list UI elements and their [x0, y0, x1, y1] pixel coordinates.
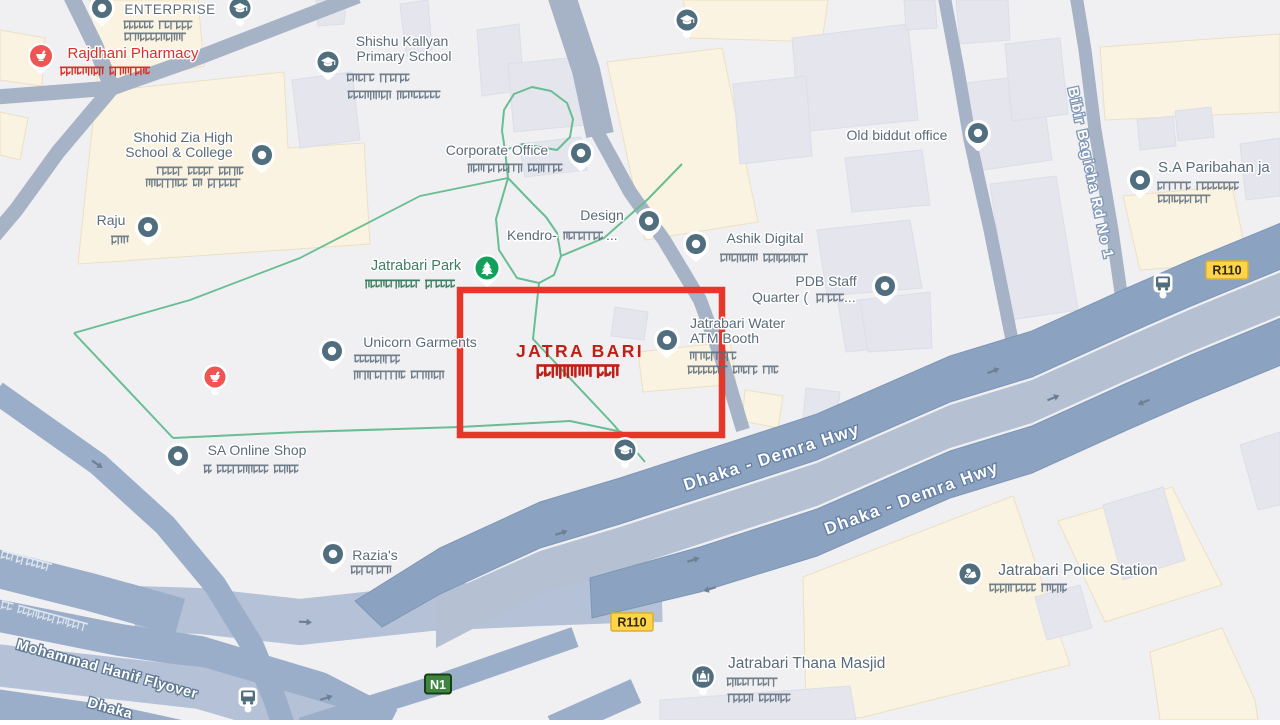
- svg-text:Jatrabari Thana Masjid: Jatrabari Thana Masjid: [728, 655, 885, 672]
- svg-text:Jatrabari Park: Jatrabari Park: [371, 258, 462, 274]
- svg-text:SA Online Shop: SA Online Shop: [208, 442, 307, 458]
- svg-text:School & College: School & College: [125, 144, 233, 160]
- svg-text:...: ...: [844, 289, 856, 305]
- svg-text:Shohid Zia High: Shohid Zia High: [133, 129, 233, 145]
- svg-text:Primary School: Primary School: [357, 48, 452, 64]
- svg-text:R110: R110: [1212, 264, 1241, 278]
- svg-text:Unicorn Garments: Unicorn Garments: [363, 334, 477, 350]
- svg-text:Rajdhani Pharmacy: Rajdhani Pharmacy: [68, 45, 199, 62]
- svg-text:Shishu Kallyan: Shishu Kallyan: [356, 33, 449, 49]
- svg-text:N1: N1: [430, 678, 446, 692]
- svg-text:ATM Booth: ATM Booth: [690, 330, 759, 346]
- svg-text:Raju: Raju: [97, 212, 126, 228]
- svg-text:Kendro-: Kendro-: [507, 227, 557, 243]
- svg-text:PDB Staff: PDB Staff: [795, 273, 856, 289]
- svg-text:Jatrabari Police Station: Jatrabari Police Station: [998, 562, 1157, 579]
- svg-text:Quarter (: Quarter (: [752, 289, 808, 305]
- svg-text:Design: Design: [580, 207, 624, 223]
- svg-text:JATRA BARI: JATRA BARI: [516, 341, 644, 361]
- svg-text:R110: R110: [617, 616, 646, 630]
- svg-text:S.A Paribahan ja: S.A Paribahan ja: [1158, 159, 1270, 176]
- svg-text:ENTERPRISE: ENTERPRISE: [124, 2, 215, 17]
- svg-text:Corporate Office: Corporate Office: [446, 142, 549, 158]
- svg-text:Jatrabari Water: Jatrabari Water: [690, 315, 786, 331]
- svg-text:...: ...: [606, 227, 618, 243]
- svg-text:Razia's: Razia's: [352, 547, 397, 563]
- svg-text:Old biddut office: Old biddut office: [847, 127, 948, 143]
- svg-text:Ashik Digital: Ashik Digital: [726, 230, 803, 246]
